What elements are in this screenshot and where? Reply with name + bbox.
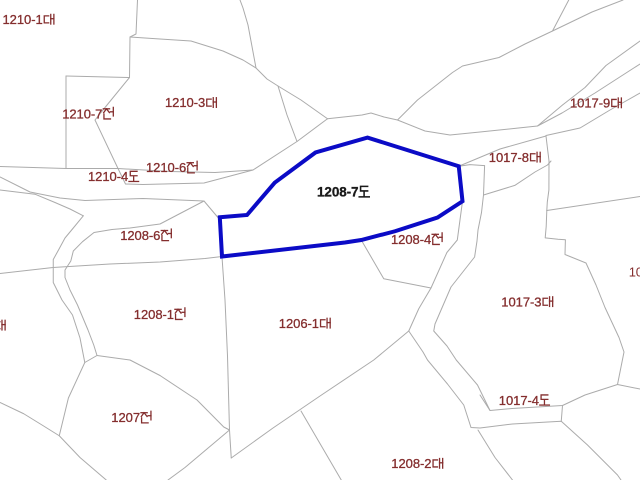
svg-text:10: 10: [629, 264, 640, 279]
svg-text:1210-4: 1210-4: [88, 169, 128, 184]
svg-text:1210-7: 1210-7: [62, 106, 102, 121]
svg-text:1208-7: 1208-7: [317, 185, 358, 200]
svg-text:1017-3: 1017-3: [501, 294, 541, 309]
svg-text:1017-9: 1017-9: [570, 96, 610, 111]
svg-text:1207: 1207: [111, 410, 140, 425]
svg-text:1210-1: 1210-1: [3, 12, 43, 27]
svg-text:1206-1: 1206-1: [279, 316, 319, 331]
svg-text:1208-1: 1208-1: [134, 307, 174, 322]
svg-text:1208-2: 1208-2: [391, 456, 431, 471]
svg-text:1210-3: 1210-3: [165, 95, 205, 110]
svg-text:1208-6: 1208-6: [120, 228, 160, 243]
svg-text:1017-8: 1017-8: [489, 150, 529, 165]
svg-text:1208-4: 1208-4: [391, 232, 431, 247]
svg-text:1210-6: 1210-6: [146, 160, 186, 175]
svg-text:1017-4: 1017-4: [499, 393, 539, 408]
